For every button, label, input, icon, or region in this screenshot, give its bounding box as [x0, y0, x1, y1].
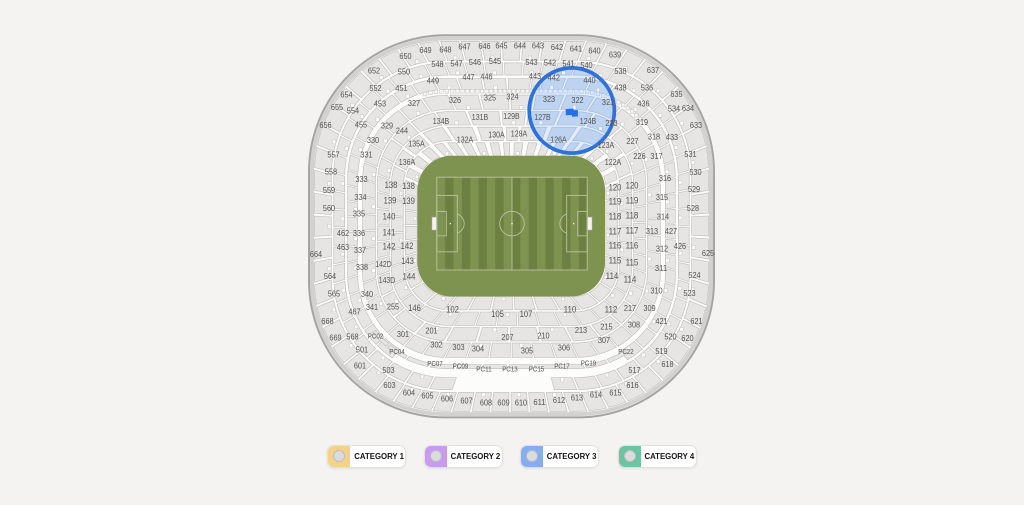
svg-text:640: 640 [588, 46, 601, 55]
svg-text:536: 536 [641, 83, 654, 92]
svg-text:321: 321 [602, 98, 615, 107]
svg-text:309: 309 [643, 304, 656, 313]
svg-text:443: 443 [529, 72, 542, 81]
svg-text:333: 333 [355, 175, 368, 184]
svg-text:635: 635 [670, 90, 683, 99]
svg-text:331: 331 [360, 150, 373, 159]
svg-text:637: 637 [647, 66, 660, 75]
svg-text:656: 656 [319, 121, 332, 130]
svg-text:613: 613 [571, 393, 584, 402]
svg-text:648: 648 [439, 45, 452, 54]
svg-text:316: 316 [659, 174, 672, 183]
svg-text:PC09: PC09 [453, 362, 468, 371]
svg-text:PC19: PC19 [581, 359, 596, 368]
svg-text:547: 547 [450, 59, 463, 68]
svg-text:315: 315 [656, 193, 669, 202]
svg-text:226: 226 [633, 152, 646, 161]
svg-text:139: 139 [384, 194, 397, 205]
svg-text:114: 114 [624, 273, 637, 284]
svg-text:119: 119 [626, 194, 639, 205]
svg-text:143D: 143D [379, 276, 395, 285]
svg-text:127B: 127B [534, 113, 551, 122]
svg-text:645: 645 [495, 41, 508, 50]
svg-text:141: 141 [383, 226, 396, 237]
svg-text:338: 338 [356, 263, 369, 272]
svg-text:446: 446 [480, 72, 493, 81]
svg-text:318: 318 [648, 132, 661, 141]
svg-text:655: 655 [331, 103, 344, 112]
svg-text:124B: 124B [580, 117, 597, 126]
svg-text:323: 323 [543, 95, 556, 104]
svg-text:606: 606 [441, 394, 454, 403]
svg-text:142: 142 [401, 240, 414, 251]
svg-text:112: 112 [605, 303, 618, 314]
svg-text:223: 223 [605, 119, 618, 128]
svg-text:340: 340 [361, 290, 374, 299]
svg-text:317: 317 [650, 152, 663, 161]
svg-text:612: 612 [553, 396, 566, 405]
svg-text:519: 519 [655, 347, 668, 356]
svg-text:609: 609 [497, 398, 510, 407]
svg-text:126A: 126A [550, 135, 567, 144]
svg-text:319: 319 [636, 118, 649, 127]
svg-text:568: 568 [346, 332, 359, 341]
svg-text:140: 140 [383, 210, 396, 221]
svg-text:335: 335 [353, 209, 366, 218]
svg-text:565: 565 [328, 289, 341, 298]
svg-text:639: 639 [609, 50, 622, 59]
svg-text:325: 325 [484, 93, 497, 102]
svg-text:605: 605 [421, 391, 434, 400]
svg-text:664: 664 [310, 250, 323, 259]
svg-text:330: 330 [367, 136, 380, 145]
svg-text:546: 546 [469, 58, 482, 67]
svg-text:308: 308 [628, 320, 641, 329]
svg-text:543: 543 [525, 58, 538, 67]
svg-text:213: 213 [575, 326, 588, 335]
svg-text:117: 117 [609, 225, 622, 236]
svg-text:548: 548 [431, 60, 444, 69]
svg-text:615: 615 [609, 388, 622, 397]
svg-text:307: 307 [598, 336, 611, 345]
svg-text:520: 520 [664, 332, 677, 341]
svg-text:115: 115 [626, 256, 639, 267]
svg-text:449: 449 [427, 76, 440, 85]
svg-text:455: 455 [355, 120, 368, 129]
svg-text:560: 560 [323, 204, 336, 213]
svg-text:105: 105 [491, 308, 504, 319]
svg-text:447: 447 [462, 73, 475, 82]
svg-text:207: 207 [501, 333, 514, 342]
svg-text:119: 119 [609, 195, 622, 206]
svg-text:120: 120 [626, 179, 639, 190]
svg-text:440: 440 [583, 76, 596, 85]
svg-text:132A: 132A [457, 135, 474, 144]
svg-text:426: 426 [674, 242, 687, 251]
svg-text:616: 616 [626, 381, 639, 390]
svg-text:601: 601 [354, 361, 367, 370]
svg-text:558: 558 [325, 167, 338, 176]
svg-text:118: 118 [626, 209, 639, 220]
svg-text:118: 118 [609, 210, 622, 221]
svg-text:324: 324 [506, 92, 519, 101]
svg-text:312: 312 [656, 244, 669, 253]
svg-text:529: 529 [688, 185, 701, 194]
svg-text:227: 227 [626, 137, 639, 146]
svg-text:217: 217 [624, 304, 637, 313]
svg-text:554: 554 [347, 106, 360, 115]
svg-text:436: 436 [637, 99, 650, 108]
svg-text:135A: 135A [408, 139, 425, 148]
svg-text:306: 306 [558, 343, 571, 352]
svg-text:641: 641 [570, 44, 583, 53]
svg-text:451: 451 [395, 84, 408, 93]
svg-text:647: 647 [458, 42, 471, 51]
svg-text:523: 523 [683, 289, 696, 298]
svg-text:310: 310 [650, 286, 663, 295]
svg-text:244: 244 [396, 126, 409, 135]
svg-text:453: 453 [374, 99, 387, 108]
svg-text:144: 144 [403, 270, 416, 281]
svg-text:442: 442 [548, 73, 561, 82]
svg-text:PC11: PC11 [476, 365, 491, 374]
svg-text:542: 542 [544, 59, 557, 68]
svg-text:564: 564 [324, 272, 337, 281]
svg-text:668: 668 [321, 317, 334, 326]
svg-text:621: 621 [690, 317, 703, 326]
svg-text:115: 115 [609, 254, 622, 265]
svg-text:329: 329 [381, 122, 394, 131]
svg-text:649: 649 [419, 46, 432, 55]
svg-text:215: 215 [600, 322, 613, 331]
svg-text:110: 110 [564, 303, 577, 314]
svg-text:322: 322 [571, 96, 584, 105]
svg-text:PC22: PC22 [618, 347, 633, 356]
svg-text:PC02: PC02 [368, 332, 383, 341]
svg-text:PC07: PC07 [427, 359, 442, 368]
svg-text:336: 336 [353, 229, 366, 238]
svg-text:503: 503 [382, 366, 395, 375]
svg-text:114: 114 [606, 270, 619, 281]
svg-text:528: 528 [687, 204, 700, 213]
svg-text:138: 138 [402, 180, 415, 191]
svg-text:557: 557 [327, 150, 340, 159]
svg-text:540: 540 [580, 61, 593, 70]
svg-text:646: 646 [478, 42, 491, 51]
svg-text:559: 559 [323, 186, 336, 195]
svg-text:142D: 142D [375, 260, 391, 269]
svg-text:608: 608 [480, 398, 493, 407]
svg-text:117: 117 [626, 224, 639, 235]
svg-text:538: 538 [614, 67, 627, 76]
svg-text:607: 607 [460, 396, 473, 405]
svg-text:669: 669 [329, 333, 342, 342]
svg-text:311: 311 [655, 264, 668, 273]
svg-text:122A: 122A [605, 158, 622, 167]
svg-text:146: 146 [408, 302, 421, 313]
svg-text:326: 326 [449, 96, 462, 105]
svg-text:530: 530 [689, 168, 702, 177]
svg-text:501: 501 [356, 345, 369, 354]
svg-text:545: 545 [489, 57, 502, 66]
svg-text:PC13: PC13 [502, 365, 517, 374]
svg-text:PC17: PC17 [554, 362, 569, 371]
svg-text:620: 620 [681, 334, 694, 343]
svg-text:PC04: PC04 [389, 347, 405, 356]
svg-text:123A: 123A [598, 141, 615, 150]
svg-text:604: 604 [403, 388, 416, 397]
svg-text:314: 314 [657, 212, 670, 221]
svg-text:116: 116 [626, 239, 639, 250]
svg-text:302: 302 [430, 340, 443, 349]
svg-text:552: 552 [369, 84, 382, 93]
svg-text:467: 467 [348, 307, 361, 316]
svg-text:634: 634 [682, 104, 695, 113]
svg-text:134B: 134B [433, 117, 450, 126]
svg-text:633: 633 [690, 121, 703, 130]
svg-text:603: 603 [383, 381, 396, 390]
svg-text:610: 610 [515, 398, 528, 407]
svg-text:618: 618 [661, 360, 674, 369]
svg-text:541: 541 [562, 59, 575, 68]
svg-text:427: 427 [665, 227, 678, 236]
svg-text:614: 614 [590, 390, 603, 399]
svg-text:303: 303 [452, 343, 465, 352]
svg-text:129B: 129B [503, 112, 520, 121]
svg-text:210: 210 [537, 331, 550, 340]
svg-text:654: 654 [340, 90, 353, 99]
svg-text:255: 255 [387, 303, 400, 312]
svg-text:334: 334 [354, 193, 367, 202]
svg-text:313: 313 [646, 227, 659, 236]
svg-text:PC15: PC15 [529, 365, 544, 374]
svg-text:611: 611 [533, 398, 546, 407]
svg-text:341: 341 [366, 303, 379, 312]
svg-text:531: 531 [684, 150, 697, 159]
svg-text:421: 421 [655, 317, 668, 326]
svg-text:116: 116 [609, 239, 622, 250]
svg-text:652: 652 [368, 66, 381, 75]
svg-text:463: 463 [337, 243, 350, 252]
svg-text:517: 517 [628, 366, 641, 375]
svg-text:433: 433 [666, 133, 679, 142]
svg-text:131B: 131B [472, 113, 489, 122]
svg-text:642: 642 [551, 43, 564, 52]
svg-text:304: 304 [472, 344, 485, 353]
svg-text:327: 327 [408, 99, 421, 108]
svg-text:650: 650 [399, 52, 412, 61]
svg-text:462: 462 [337, 229, 350, 238]
svg-text:139: 139 [402, 195, 415, 206]
svg-text:524: 524 [688, 271, 701, 280]
svg-text:201: 201 [425, 326, 438, 335]
svg-text:534: 534 [668, 104, 681, 113]
svg-text:438: 438 [614, 83, 627, 92]
svg-text:301: 301 [397, 330, 410, 339]
svg-text:337: 337 [354, 246, 367, 255]
svg-text:120: 120 [609, 181, 622, 192]
svg-text:102: 102 [446, 303, 459, 314]
svg-text:107: 107 [520, 308, 533, 319]
svg-text:136A: 136A [399, 158, 416, 167]
svg-text:643: 643 [532, 41, 545, 50]
svg-text:142: 142 [383, 240, 396, 251]
svg-text:128A: 128A [511, 129, 528, 138]
svg-text:130A: 130A [488, 130, 505, 139]
svg-text:305: 305 [521, 346, 534, 355]
svg-text:625: 625 [702, 249, 715, 258]
svg-text:138: 138 [385, 179, 398, 190]
svg-text:644: 644 [514, 41, 527, 50]
svg-text:550: 550 [398, 67, 411, 76]
svg-text:143: 143 [401, 255, 414, 266]
